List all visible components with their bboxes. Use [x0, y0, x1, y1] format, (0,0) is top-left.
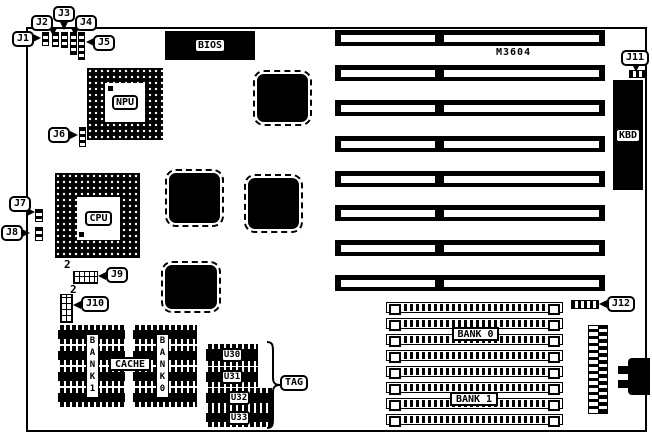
- callout-j3-pointer: [60, 22, 68, 30]
- npu-socket: NPU: [87, 68, 163, 140]
- callout-j8: J8: [1, 225, 23, 241]
- callout-j10-pointer: [73, 301, 81, 309]
- jumper-j8: [35, 227, 43, 241]
- callout-j1-pointer: [33, 34, 41, 42]
- callout-j11: J11: [621, 50, 649, 66]
- chip-u33: U33: [206, 408, 272, 427]
- simm-socket-5: [386, 366, 563, 377]
- u33-label: U33: [228, 411, 250, 425]
- callout-j10: J10: [81, 296, 109, 312]
- u31-label: U31: [221, 370, 243, 384]
- isa-slot-4: [335, 136, 605, 152]
- callout-j12-pointer: [599, 300, 607, 308]
- simm-socket-8: [386, 414, 563, 425]
- cpu-socket: CPU: [55, 173, 140, 258]
- jumper-j7: [35, 209, 43, 222]
- board-model-label: M3604: [496, 47, 531, 58]
- npu-pin1-marker: [108, 86, 113, 91]
- callout-j6-pointer: [70, 131, 78, 139]
- callout-j5: J5: [93, 35, 115, 51]
- simm-socket-1: [386, 302, 563, 313]
- isa-slot-2: [335, 65, 605, 81]
- bios-chip: BIOS: [165, 31, 255, 60]
- u30-label: U30: [221, 348, 243, 362]
- qfp-chip-2: [169, 173, 220, 223]
- kbd-label: KBD: [615, 128, 641, 143]
- jumper-j3: [61, 32, 68, 48]
- callout-j8-pointer: [22, 229, 30, 237]
- qfp-chip-4: [165, 265, 217, 309]
- sram-bank0-label: BANK0: [156, 334, 169, 398]
- qfp-chip-3: [248, 178, 299, 229]
- cpu-pin1-marker: [79, 232, 84, 237]
- chip-u30: U30: [206, 344, 258, 366]
- power-connector: [588, 325, 608, 414]
- chip-u32: U32: [206, 388, 272, 408]
- jumper-j10: [60, 294, 73, 323]
- jumper-j12: [571, 300, 599, 309]
- isa-slot-6: [335, 205, 605, 221]
- qfp-chip-1: [257, 74, 308, 122]
- isa-slot-7: [335, 240, 605, 256]
- callout-j7: J7: [9, 196, 31, 212]
- tag-label: TAG: [280, 375, 308, 391]
- callout-j2: J2: [31, 15, 53, 31]
- j9-pin2-label: 2: [64, 259, 71, 270]
- j10-pin2-label: 2: [70, 284, 77, 295]
- isa-slot-1: [335, 30, 605, 46]
- npu-label: NPU: [112, 95, 138, 110]
- callout-j9-pointer: [98, 272, 106, 280]
- isa-slot-3: [335, 100, 605, 116]
- simm-bank0-label: BANK 0: [452, 327, 499, 341]
- din-connector: [618, 356, 650, 396]
- jumper-j9: [73, 271, 98, 284]
- callout-j1: J1: [12, 31, 34, 47]
- callout-j9: J9: [106, 267, 128, 283]
- simm-socket-4: [386, 350, 563, 361]
- jumper-j5: [78, 32, 85, 60]
- sram-bank1-label: BANK1: [86, 334, 99, 398]
- cpu-label: CPU: [85, 211, 111, 226]
- callout-j12: J12: [607, 296, 635, 312]
- isa-slot-5: [335, 171, 605, 187]
- u32-label: U32: [228, 391, 250, 405]
- jumper-j1: [42, 32, 49, 46]
- jumper-j6: [79, 127, 86, 147]
- kbd-connector: KBD: [613, 80, 643, 190]
- cache-label: CACHE: [109, 357, 151, 371]
- callout-j4: J4: [75, 15, 97, 31]
- callout-j3: J3: [53, 6, 75, 22]
- callout-j6: J6: [48, 127, 70, 143]
- simm-bank1-label: BANK 1: [450, 392, 498, 406]
- motherboard-diagram: J1 J2 J3 J4 J5 BIOS NPU J6 CPU J7 J8 2 J…: [0, 0, 652, 438]
- bios-label: BIOS: [194, 38, 226, 53]
- chip-u31: U31: [206, 367, 258, 387]
- isa-slot-8: [335, 275, 605, 291]
